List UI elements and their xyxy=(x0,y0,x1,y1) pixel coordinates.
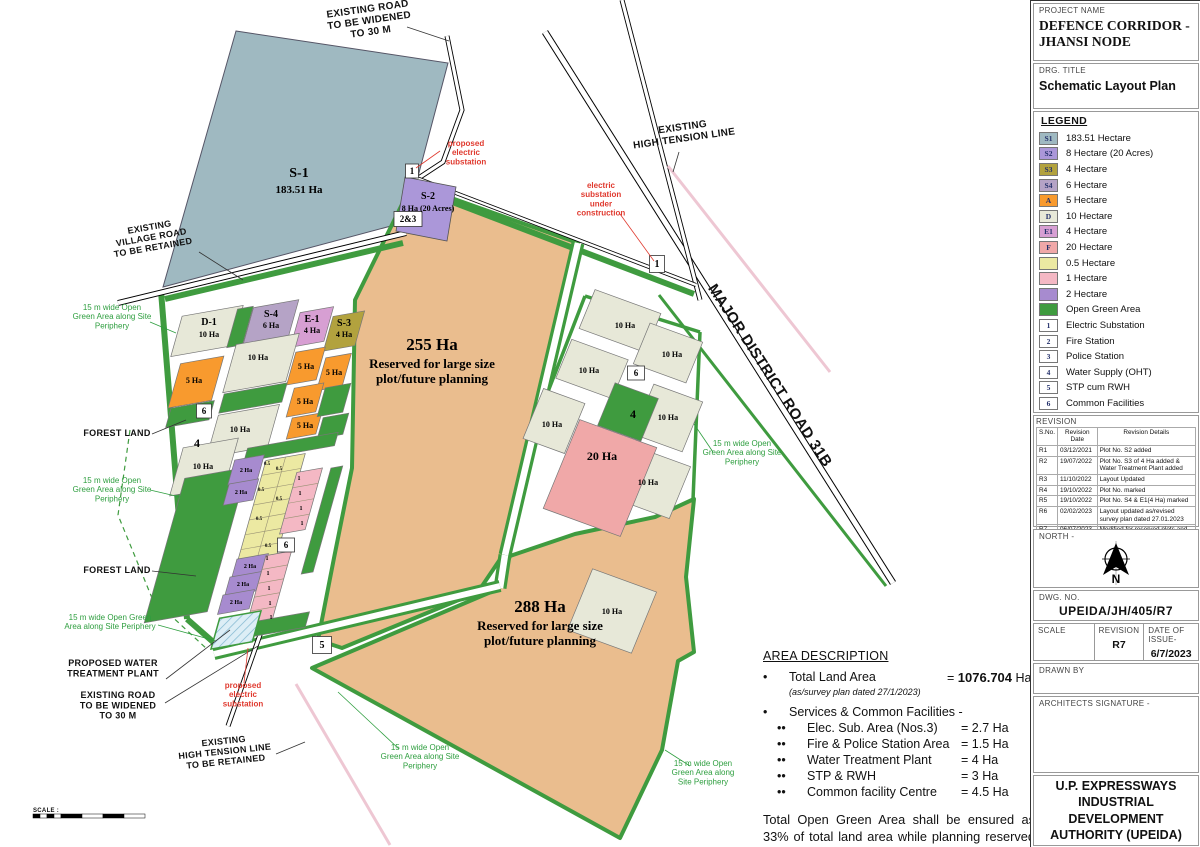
services-list: ••Elec. Sub. Area (Nos.3)= 2.7 Ha••Fire … xyxy=(763,721,1035,799)
reserved-255-note: Reserved for large sizeplot/future plann… xyxy=(369,356,495,386)
legend-section: LEGEND S1183.51 HectareS28 Hectare (20 A… xyxy=(1033,111,1199,413)
green-note-2: 15 m wide OpenGreen Area along SitePerip… xyxy=(73,476,152,503)
legend-label: 0.5 Hectare xyxy=(1066,258,1115,269)
drawn-by-section: DRAWN BY xyxy=(1033,663,1199,694)
date-of-issue-value: 6/7/2023 xyxy=(1148,648,1194,660)
revision-cell: REVISION R7 xyxy=(1094,624,1144,660)
service-text: Water Treatment Plant xyxy=(807,753,961,767)
revision-cell: R5 xyxy=(1037,496,1058,507)
total-land-area-label: Total Land Area xyxy=(789,670,947,685)
plot-s3-area: 4 Ha xyxy=(336,330,352,339)
legend-item-0: S1183.51 Hectare xyxy=(1039,131,1193,147)
drawn-by-label: DRAWN BY xyxy=(1039,666,1193,675)
plot-s2-code: S-2 xyxy=(421,191,435,202)
revision-section: REVISION S.No.Revision DateRevision Deta… xyxy=(1033,415,1199,527)
facility-box-number: 2&3 xyxy=(400,214,417,224)
revision-row-R4: R419/10/2022Plot No. marked xyxy=(1037,485,1196,496)
legend-item-13: 2Fire Station xyxy=(1039,333,1193,349)
plot-1ha: 1 xyxy=(270,615,273,621)
revision-row-R1: R103/12/2021Plot No. S2 added xyxy=(1037,445,1196,456)
architects-signature-label: ARCHITECTS SIGNATURE - xyxy=(1039,699,1193,708)
legend-swatch: 2 xyxy=(1039,335,1058,348)
plot-10ha: 10 Ha xyxy=(579,366,599,375)
drg-title: Schematic Layout Plan xyxy=(1039,79,1193,93)
legend-label: 8 Hectare (20 Acres) xyxy=(1066,148,1153,159)
survey-plan-note: (as/survey plan dated 27/1/2023) xyxy=(789,687,1035,697)
plot-2ha: 2 Ha xyxy=(237,582,249,588)
legend-item-11: Open Green Area xyxy=(1039,302,1193,318)
facility-4-left: 4 xyxy=(194,436,200,450)
facility-box-number: 5 xyxy=(320,640,325,651)
legend-item-17: 6Common Facilities xyxy=(1039,396,1193,412)
revision-cell: Layout updated as/revised survey plan da… xyxy=(1097,507,1195,525)
plot-10ha: 10 Ha xyxy=(602,607,622,616)
legend-swatch: A xyxy=(1039,194,1058,207)
revision-cell: R2 xyxy=(1037,456,1058,474)
service-text: Fire & Police Station Area xyxy=(807,737,961,751)
legend-item-6: E14 Hectare xyxy=(1039,224,1193,240)
plot-05ha: 0.5 xyxy=(256,517,263,522)
dwg-no: UPEIDA/JH/405/R7 xyxy=(1039,604,1193,618)
legend-label: Electric Substation xyxy=(1066,320,1145,331)
legend-swatch: D xyxy=(1039,210,1058,223)
legend-label: Open Green Area xyxy=(1066,304,1140,315)
plot-10ha: 10 Ha xyxy=(248,353,268,362)
legend-item-2: S34 Hectare xyxy=(1039,162,1193,178)
green-note-4: 15 m wide OpenGreen Area along SitePerip… xyxy=(703,439,782,466)
legend-swatch xyxy=(1039,288,1058,301)
revision-column: Revision Details xyxy=(1097,427,1195,445)
layout-plan-sheet: 12&316665 xyxy=(0,0,1200,847)
plot-10ha: 10 Ha xyxy=(658,413,678,422)
legend-label: 10 Hectare xyxy=(1066,211,1112,222)
proposed-wtp-note: PROPOSED WATERTREATMENT PLANT xyxy=(67,658,159,678)
legend-item-4: A5 Hectare xyxy=(1039,193,1193,209)
legend-item-3: S46 Hectare xyxy=(1039,177,1193,193)
project-name-label: PROJECT NAME xyxy=(1039,6,1193,15)
plot-e1-code: E-1 xyxy=(305,314,320,325)
scale-bar xyxy=(33,814,145,818)
service-text: = 1.5 Ha xyxy=(961,737,1035,751)
legend-swatch: 4 xyxy=(1039,366,1058,379)
facility-4-right: 4 xyxy=(630,407,636,421)
forest-land-1: FOREST LAND xyxy=(83,428,150,438)
services-heading: Services & Common Facilities - xyxy=(789,705,1035,719)
existing-ht-line-top-note: EXISTINGHIGH TENSION LINE xyxy=(631,115,736,152)
drg-title-section: DRG. TITLE Schematic Layout Plan xyxy=(1033,63,1199,109)
plot-2ha: 2 Ha xyxy=(230,600,242,606)
service-text: •• xyxy=(777,785,807,799)
north-label: NORTH - xyxy=(1039,532,1193,541)
plot-10ha: 10 Ha xyxy=(230,425,250,434)
revision-cell: Plot No. S4 & E1(4 Ha) marked xyxy=(1097,496,1195,507)
revision-cell: 19/10/2022 xyxy=(1057,485,1097,496)
revision-cell: 11/10/2022 xyxy=(1057,475,1097,486)
facility-box-number: 1 xyxy=(410,166,415,176)
legend-swatch: 3 xyxy=(1039,350,1058,363)
dwg-no-label: DWG. NO. xyxy=(1039,593,1193,602)
plot-05ha: 0.5 xyxy=(276,467,283,472)
service-text: •• xyxy=(777,769,807,783)
scale-cell: SCALE xyxy=(1034,624,1094,660)
revision-cell: 03/12/2021 xyxy=(1057,445,1097,456)
revision-column: Revision Date xyxy=(1057,427,1097,445)
open-green-note: Total Open Green Area shall be ensured a… xyxy=(763,811,1035,847)
legend-label: Common Facilities xyxy=(1066,398,1144,409)
green-note-3: 15 m wide Open GreenArea along Site Peri… xyxy=(64,613,155,631)
legend-label: 1 Hectare xyxy=(1066,273,1107,284)
legend-swatch: S4 xyxy=(1039,179,1058,192)
plot-s4-area: 6 Ha xyxy=(263,321,279,330)
plot-5ha: 5 Ha xyxy=(186,376,202,385)
plot-d1-code: D-1 xyxy=(201,317,217,328)
legend-label: 2 Hectare xyxy=(1066,289,1107,300)
revision-cell: Plot No. S2 added xyxy=(1097,445,1195,456)
plot-1ha: 1 xyxy=(300,506,303,512)
authority-section: U.P. EXPRESSWAYS INDUSTRIAL DEVELOPMENT … xyxy=(1033,775,1199,846)
facility-box-number: 6 xyxy=(202,406,207,416)
revision-row-R2: R219/07/2022Plot No. S3 of 4 Ha added & … xyxy=(1037,456,1196,474)
plot-s3-code: S-3 xyxy=(337,318,351,329)
reserved-288: 288 Ha xyxy=(514,597,566,616)
service-text: = 4.5 Ha xyxy=(961,785,1035,799)
revision-cell: Plot No. S3 of 4 Ha added & Water Treatm… xyxy=(1097,456,1195,474)
legend-label: Police Station xyxy=(1066,351,1124,362)
plot-s1-code: S-1 xyxy=(289,166,308,181)
legend-item-9: 1 Hectare xyxy=(1039,271,1193,287)
legend-label: 6 Hectare xyxy=(1066,180,1107,191)
service-row-4: ••Common facility Centre= 4.5 Ha xyxy=(763,785,1035,799)
forest-land-2: FOREST LAND xyxy=(83,565,150,575)
plot-05ha: 0.5 xyxy=(276,497,283,502)
service-row-1: ••Fire & Police Station Area= 1.5 Ha xyxy=(763,737,1035,751)
legend-label: Water Supply (OHT) xyxy=(1066,367,1152,378)
scale-revision-date-section: SCALE REVISION R7 DATE OF ISSUE- 6/7/202… xyxy=(1033,623,1199,661)
service-row-0: ••Elec. Sub. Area (Nos.3)= 2.7 Ha xyxy=(763,721,1035,735)
legend-swatch: F xyxy=(1039,241,1058,254)
services-heading-row: • Services & Common Facilities - xyxy=(763,705,1035,719)
dwg-no-section: DWG. NO. UPEIDA/JH/405/R7 xyxy=(1033,590,1199,621)
plot-5ha: 5 Ha xyxy=(326,368,342,377)
title-block: PROJECT NAME DEFENCE CORRIDOR - JHANSI N… xyxy=(1030,0,1200,847)
plot-e1-area: 4 Ha xyxy=(304,326,320,335)
bullet: • xyxy=(763,670,789,685)
legend-swatch: S1 xyxy=(1039,132,1058,145)
area-description: AREA DESCRIPTION • Total Land Area = 107… xyxy=(763,649,1035,847)
legend-items: S1183.51 HectareS28 Hectare (20 Acres)S3… xyxy=(1039,131,1193,412)
service-text: = 3 Ha xyxy=(961,769,1035,783)
scale-bar-label: SCALE : xyxy=(33,808,59,814)
legend-swatch: 6 xyxy=(1039,397,1058,410)
revision-cell: R3 xyxy=(1037,475,1058,486)
revision-cell: 19/07/2022 xyxy=(1057,456,1097,474)
plot-1ha: 1 xyxy=(298,476,301,482)
plot-10ha: 10 Ha xyxy=(615,321,635,330)
plot-1ha: 1 xyxy=(299,491,302,497)
plot-2ha: 2 Ha xyxy=(240,468,252,474)
north-arrow-icon: N xyxy=(1040,541,1192,585)
project-name-section: PROJECT NAME DEFENCE CORRIDOR - JHANSI N… xyxy=(1033,3,1199,61)
date-of-issue-label: DATE OF ISSUE- xyxy=(1148,626,1194,644)
bullet: • xyxy=(763,705,789,719)
existing-ht-line-bottom-note: EXISTINGHIGH TENSION LINETO BE RETAINED xyxy=(177,731,273,771)
legend-label: 4 Hectare xyxy=(1066,226,1107,237)
drg-title-label: DRG. TITLE xyxy=(1039,66,1193,75)
reserved-288-note: Reserved for large sizeplot/future plann… xyxy=(477,618,603,648)
legend-swatch: 1 xyxy=(1039,319,1058,332)
area-description-heading: AREA DESCRIPTION xyxy=(763,649,1035,663)
service-row-2: ••Water Treatment Plant= 4 Ha xyxy=(763,753,1035,767)
legend-item-10: 2 Hectare xyxy=(1039,287,1193,303)
revision-cell: 19/10/2022 xyxy=(1057,496,1097,507)
facility-box-number: 6 xyxy=(634,368,639,378)
revision-row-R3: R311/10/2022Layout Updated xyxy=(1037,475,1196,486)
red-note-substation-construction: electricsubstationunderconstruction xyxy=(577,181,626,218)
plot-10ha: 10 Ha xyxy=(542,420,562,429)
legend-swatch: S2 xyxy=(1039,147,1058,160)
total-land-area-value: = 1076.704 Ha xyxy=(947,670,1035,685)
service-text: Elec. Sub. Area (Nos.3) xyxy=(807,721,961,735)
revision-value: R7 xyxy=(1099,639,1140,651)
revision-cell: R1 xyxy=(1037,445,1058,456)
reserved-255: 255 Ha xyxy=(406,335,458,354)
green-note-5: 15 m wide OpenGreen Area along SitePerip… xyxy=(381,743,460,770)
legend-label: STP cum RWH xyxy=(1066,382,1130,393)
legend-label: 183.51 Hectare xyxy=(1066,133,1131,144)
plot-5ha: 5 Ha xyxy=(297,421,313,430)
plot-20ha: 20 Ha xyxy=(587,449,617,463)
green-note-1: 15 m wide OpenGreen Area along SitePerip… xyxy=(73,303,152,330)
plot-05ha: 0.5 xyxy=(264,462,271,467)
service-text: = 4 Ha xyxy=(961,753,1035,767)
revision-label: REVISION xyxy=(1099,626,1140,635)
legend-heading: LEGEND xyxy=(1041,115,1193,127)
legend-item-7: F20 Hectare xyxy=(1039,240,1193,256)
legend-item-15: 4Water Supply (OHT) xyxy=(1039,364,1193,380)
plot-1ha: 1 xyxy=(269,601,272,607)
revision-cell: R4 xyxy=(1037,485,1058,496)
plot-5ha: 5 Ha xyxy=(298,362,314,371)
service-text: = 2.7 Ha xyxy=(961,721,1035,735)
plot-10ha: 10 Ha xyxy=(638,478,658,487)
service-text: •• xyxy=(777,737,807,751)
legend-item-14: 3Police Station xyxy=(1039,349,1193,365)
plot-1ha: 1 xyxy=(267,571,270,577)
facility-box-number: 1 xyxy=(655,259,660,270)
existing-road-top-note: EXISTING ROADTO BE WIDENEDTO 30 M xyxy=(325,0,413,44)
north-section: NORTH - N xyxy=(1033,529,1199,588)
service-text: •• xyxy=(777,721,807,735)
plot-2ha: 2 Ha xyxy=(235,490,247,496)
legend-item-12: 1Electric Substation xyxy=(1039,318,1193,334)
plot-1ha: 1 xyxy=(301,521,304,527)
legend-item-1: S28 Hectare (20 Acres) xyxy=(1039,146,1193,162)
scale-label: SCALE xyxy=(1038,626,1090,635)
service-row-3: ••STP & RWH= 3 Ha xyxy=(763,769,1035,783)
revision-heading: REVISION xyxy=(1036,417,1196,426)
red-note-proposed-substation-bottom: proposedelectricsubstation xyxy=(223,681,264,708)
legend-item-16: 5STP cum RWH xyxy=(1039,380,1193,396)
revision-cell: Plot No. marked xyxy=(1097,485,1195,496)
plot-10ha: 10 Ha xyxy=(193,462,213,471)
plot-1ha: 1 xyxy=(268,586,271,592)
green-note-6: 15 m wide OpenGreen Area alongSite Perip… xyxy=(672,759,735,786)
architects-signature-section: ARCHITECTS SIGNATURE - xyxy=(1033,696,1199,773)
service-text: STP & RWH xyxy=(807,769,961,783)
service-text: •• xyxy=(777,753,807,767)
facility-box-number: 6 xyxy=(284,540,289,550)
legend-item-5: D10 Hectare xyxy=(1039,209,1193,225)
red-note-proposed-substation-top: proposedelectricsubstation xyxy=(446,139,487,166)
plot-s2-area: 8 Ha (20 Acres) xyxy=(402,204,455,213)
plot-5ha: 5 Ha xyxy=(297,397,313,406)
date-cell: DATE OF ISSUE- 6/7/2023 xyxy=(1143,624,1198,660)
legend-swatch xyxy=(1039,257,1058,270)
plot-05ha: 0.5 xyxy=(265,544,272,549)
legend-label: 5 Hectare xyxy=(1066,195,1107,206)
revision-cell: Layout Updated xyxy=(1097,475,1195,486)
legend-item-8: 0.5 Hectare xyxy=(1039,255,1193,271)
project-name: DEFENCE CORRIDOR - JHANSI NODE xyxy=(1039,18,1193,50)
revision-column: S.No. xyxy=(1037,427,1058,445)
plot-10ha: 10 Ha xyxy=(662,350,682,359)
legend-swatch: S3 xyxy=(1039,163,1058,176)
revision-cell: 02/02/2023 xyxy=(1057,507,1097,525)
plot-d1-area: 10 Ha xyxy=(199,330,219,339)
revision-row-R6: R602/02/2023Layout updated as/revised su… xyxy=(1037,507,1196,525)
total-land-area-row: • Total Land Area = 1076.704 Ha xyxy=(763,670,1035,685)
service-text: Common facility Centre xyxy=(807,785,961,799)
plot-s1-area: 183.51 Ha xyxy=(275,184,323,196)
legend-swatch: 5 xyxy=(1039,381,1058,394)
legend-label: 20 Hectare xyxy=(1066,242,1112,253)
plot-05ha: 0.5 xyxy=(258,488,265,493)
legend-swatch: E1 xyxy=(1039,225,1058,238)
plot-2ha: 2 Ha xyxy=(244,564,256,570)
legend-label: Fire Station xyxy=(1066,336,1115,347)
existing-road-bottom-note: EXISTING ROADTO BE WIDENEDTO 30 M xyxy=(80,690,156,721)
revision-cell: R6 xyxy=(1037,507,1058,525)
legend-swatch xyxy=(1039,272,1058,285)
revision-row-R5: R519/10/2022Plot No. S4 & E1(4 Ha) marke… xyxy=(1037,496,1196,507)
legend-label: 4 Hectare xyxy=(1066,164,1107,175)
plot-1ha: 1 xyxy=(266,556,269,562)
plot-s4-code: S-4 xyxy=(264,309,278,320)
legend-swatch xyxy=(1039,303,1058,316)
svg-text:N: N xyxy=(1112,572,1121,585)
